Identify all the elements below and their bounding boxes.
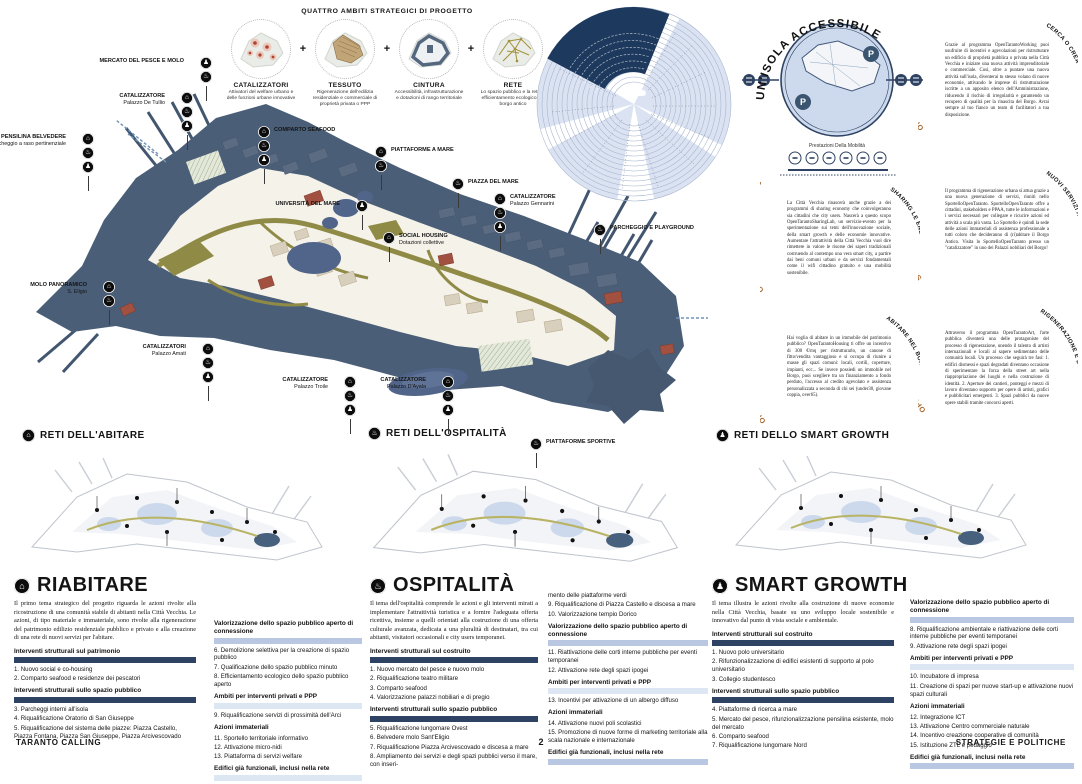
abitare-icon: ⌂	[383, 232, 395, 244]
intervention-list: 1. Nuovo polo universitario2. Rifunziona…	[712, 649, 894, 684]
intervention-item: 3. Parcheggi interni all'isola	[14, 706, 196, 714]
intervention-item: 5. Riqualificazione lungomare Ovest	[370, 725, 538, 733]
accessible-island-diagram: P P UN'ISOLA ACCESSIBILE Prestazioni Del…	[740, 4, 925, 182]
section-column-left: Interventi strutturali sul costruito1. N…	[712, 631, 894, 751]
marker-stem	[206, 86, 207, 101]
abitare-icon: ⌂	[82, 133, 94, 145]
list-header: Edifici già funzionali, inclusi nella re…	[548, 749, 708, 757]
intervention-item: 4. Valorizzazione palazzi nobiliari e di…	[370, 694, 538, 702]
list-header: Valorizzazione dello spazio pubblico ape…	[214, 620, 362, 636]
list-header-bar	[548, 688, 708, 694]
marker-label: CATALIZZATORIPalazzo Amati	[94, 344, 186, 357]
ambito-name: CINTURA	[394, 82, 464, 89]
list-header-bar	[548, 717, 708, 719]
program-body-text: La Città Vecchia rinascerà anche grazie …	[787, 201, 891, 277]
ospitalita-icon: ♨	[442, 390, 454, 402]
mobility-icons-row	[789, 152, 886, 164]
marker-stem	[208, 386, 209, 401]
ospitalita-icon: ♨	[82, 147, 94, 159]
ospitalita-icon: ♨	[202, 357, 214, 369]
marker-label: PIATTAFORME A MARE	[391, 147, 483, 154]
intervention-item: 5. Mercato del pesce, rifunzionalizzazio…	[712, 716, 894, 732]
list-header: Interventi strutturali sul patrimonio	[14, 648, 196, 656]
list-header-bar	[214, 732, 362, 734]
network-map-title: RETI DELLO SMART GROWTH	[734, 430, 889, 441]
list-header: Interventi strutturali sullo spazio pubb…	[370, 706, 538, 714]
marker-stem	[350, 419, 351, 434]
marker-label: UNIVERSITÀ DEL MARE	[248, 201, 340, 208]
marker-stem	[381, 175, 382, 190]
marker-stem	[448, 419, 449, 434]
smart-icon: ♟	[82, 161, 94, 173]
section-intro: Il tema dell'ospitalità comprende le azi…	[370, 600, 538, 643]
urban-fabric-icon	[317, 21, 373, 77]
ospitalita-icon: ♨	[370, 578, 386, 594]
intervention-list: 1. Nuovo mercato del pesce e nuovo molo2…	[370, 666, 538, 702]
smart-growth-icon: ♟	[712, 578, 728, 594]
marker-label: PARCHEGGIO E PLAYGROUND	[610, 225, 702, 232]
list-header: Ambiti per interventi privati e PPP	[910, 655, 1074, 663]
list-header: Edifici già funzionali, inclusi nella re…	[910, 754, 1074, 762]
marker-sublabel: S. Eligio	[0, 289, 87, 295]
list-header: Azioni immateriali	[910, 703, 1074, 711]
svg-text:OPENTARANTOHOUSING: OPENTARANTOHOUSING	[760, 324, 768, 425]
svg-text:P: P	[868, 49, 874, 59]
mobility-caption: Prestazioni Della Mobilità	[809, 143, 865, 149]
marker-sublabel: Dotazioni collettive	[399, 240, 491, 246]
intervention-list: 11. Riattivazione delle corti interne pu…	[548, 649, 708, 674]
ospitalita-icon: ♨	[368, 427, 381, 440]
marker-label: MOLO PANORAMICOS. Eligio	[0, 282, 87, 295]
list-header-bar	[214, 638, 362, 644]
list-header-bar	[910, 763, 1074, 769]
intervention-item: mento delle piattaforme verdi	[548, 592, 708, 600]
intervention-item: 1. Nuovo social e co-housing	[14, 666, 196, 674]
intervention-item: 2. Rifunzionalizzazione di edifici esist…	[712, 658, 894, 674]
marker-stem	[536, 453, 537, 468]
ospitalita-icon: ♨	[103, 295, 115, 307]
network-map-header-ospitalita: ♨ RETI DELL'OSPITALITÀ	[368, 427, 507, 440]
plus-sign: +	[384, 43, 390, 55]
list-header-bar	[548, 759, 708, 765]
intervention-item: 10. Valorizzazione tempio Dorico	[548, 611, 708, 619]
section-column-left: Interventi strutturali sul patrimonio1. …	[14, 648, 196, 741]
strategy-radial-diagram	[526, 2, 741, 207]
ambito-cintura: CINTURA Accessibilità, infrastrutturazio…	[394, 19, 464, 102]
intervention-item: 4. Riqualificazione Oratorio di San Gius…	[14, 715, 196, 723]
intervention-item: 1. Nuovo polo universitario	[712, 649, 894, 657]
program-block-sportello: SPORTELLOOPENTARANTO NUOVI SERVIZI A DIS…	[918, 156, 1078, 316]
abitare-icon: ⌂	[22, 429, 35, 442]
marker-stem	[458, 193, 459, 208]
marker-label: MERCATO DEL PESCE E MOLO	[92, 58, 184, 65]
intervention-item: 9. Riqualificazione di Piazza Castello e…	[548, 601, 708, 609]
section-intro: Il tema illustra le azioni rivolte alla …	[712, 600, 894, 626]
intervention-item: 13. Incentivi per attivazione di un albe…	[548, 697, 708, 705]
ambito-caption: Accessibilità, infrastrutturazione e dot…	[394, 90, 464, 102]
intervention-list: 8. Riqualificazione ambientale e riattiv…	[910, 626, 1074, 651]
marker-sublabel: Palazzo Troile	[236, 384, 328, 390]
intervention-item: 10. Incubatore di impresa	[910, 673, 1074, 681]
marker-stem	[362, 215, 363, 230]
program-curved-title: OPENTARANTOSHARINGLAB	[760, 178, 766, 294]
list-header: Azioni immateriali	[214, 724, 362, 732]
list-header-bar	[14, 657, 196, 663]
footer-section-title: STRATEGIE E POLITICHE	[956, 738, 1066, 747]
intervention-item: 14. Attivazione nuovi poli scolastici	[548, 720, 708, 728]
ospitalita-icon: ♨	[181, 106, 193, 118]
intervention-list: 3. Parcheggi interni all'isola4. Riquali…	[14, 706, 196, 741]
ospitalita-icon: ♨	[452, 178, 464, 190]
intervention-item: 12. Attivazione rete degli spazi ipogei	[548, 667, 708, 675]
marker-stem	[88, 176, 89, 191]
abitare-icon: ⌂	[258, 126, 270, 138]
intervention-list: mento delle piattaforme verdi9. Riqualif…	[548, 592, 708, 619]
marker-sublabel: Palazzo De Tullio	[73, 100, 165, 106]
abitare-icon: ⌂	[181, 92, 193, 104]
list-header: Ambiti per interventi privati e PPP	[548, 679, 708, 687]
ospitalita-icon: ♨	[344, 390, 356, 402]
intervention-item: 6. Demolizione selettiva per la creazion…	[214, 647, 362, 663]
section-title: SMART GROWTH	[735, 574, 908, 597]
ambito-name: CATALIZZATORI	[226, 82, 296, 89]
marker-stem	[109, 310, 110, 325]
intervention-list: 9. Riqualificazione servizi di prossimit…	[214, 712, 362, 720]
intervention-item: 8. Riqualificazione ambientale e riattiv…	[910, 626, 1074, 642]
program-block-art: OPENTARANTOART RIGENERAZIONE E D'ARTE At…	[918, 298, 1078, 458]
svg-text:NUOVI SERVIZI A DISPOSIZIONE: NUOVI SERVIZI A DISPOSIZIONE	[1045, 171, 1078, 265]
ospitalita-icon: ♨	[375, 160, 387, 172]
ospitalita-icon: ♨	[258, 140, 270, 152]
smart-icon: ♟	[494, 221, 506, 233]
smart-icon: ♟	[356, 200, 368, 212]
list-header: Interventi strutturali sullo spazio pubb…	[14, 687, 196, 695]
abitare-icon: ⌂	[202, 343, 214, 355]
program-side-label: SHARING LE ENERGIE	[889, 187, 920, 251]
section-intro: Il primo tema strategico del progetto ri…	[14, 600, 196, 643]
belt-outline-icon	[401, 21, 457, 77]
section-smart-growth: ♟ SMART GROWTH Il tema illustra le azion…	[712, 574, 1074, 752]
marker-label: CATALIZZATOREPalazzo D'Ayala	[334, 377, 426, 390]
ospitalita-icon: ♨	[494, 207, 506, 219]
abitare-icon: ⌂	[442, 376, 454, 388]
marker-label: CATALIZZATOREPalazzo Troile	[236, 377, 328, 390]
network-map-title: RETI DELL'ABITARE	[40, 430, 145, 441]
list-header: Valorizzazione dello spazio pubblico ape…	[910, 599, 1074, 615]
intervention-item: 2. Comparto seafood e residenze dei pesc…	[14, 675, 196, 683]
intervention-item: 9. Attivazione rete degli spazi ipogei	[910, 643, 1074, 651]
section-riabitare: ⌂ RIABITARE Il primo tema strategico del…	[14, 574, 362, 742]
network-map-abitare	[12, 452, 342, 570]
program-curved-title: OPENTARANTOWORKING	[918, 29, 926, 132]
abitare-icon: ⌂	[494, 193, 506, 205]
program-curved-title: OPENTARANTOHOUSING	[760, 324, 768, 425]
ambito-tessuto: TESSUTO Rigenerazione dell'edilizia resi…	[310, 19, 380, 108]
network-map-header-abitare: ⌂ RETI DELL'ABITARE	[22, 429, 145, 442]
svg-text:OPENTARANTOSHARINGLAB: OPENTARANTOSHARINGLAB	[760, 178, 766, 294]
list-header-bar	[548, 640, 708, 646]
ospitalita-icon: ♨	[594, 224, 606, 236]
program-body-text: Attraverso il programma OpenTarantoArt, …	[945, 331, 1049, 407]
abitare-icon: ⌂	[103, 281, 115, 293]
ambito-name: TESSUTO	[310, 82, 380, 89]
smart-icon: ♟	[202, 371, 214, 383]
marker-label: COMPARTO SEAFOOD	[274, 127, 366, 134]
list-header: Interventi strutturali sul costruito	[712, 631, 894, 639]
quattro-ambiti-panel: QUATTRO AMBITI STRATEGICI DI PROGETTO CA…	[226, 8, 548, 108]
marker-label: PENSILINA BELVEDERE+ parcheggio a raso p…	[0, 134, 66, 147]
abitare-icon: ⌂	[14, 578, 30, 594]
program-block-working: OPENTARANTOWORKING CERCA O CREA Grazie a…	[918, 10, 1078, 170]
marker-stem	[389, 247, 390, 262]
plus-sign: +	[468, 43, 474, 55]
catalysts-dots-icon	[233, 21, 289, 77]
intervention-item: 11. Creazione di spazi per nuove start-u…	[910, 683, 1074, 699]
intervention-list: 1. Nuovo social e co-housing2. Comparto …	[14, 666, 196, 683]
intervention-item: 8. Ampliamento dei servizi e degli spazi…	[370, 753, 538, 769]
list-header: Edifici già funzionali, inclusi nella re…	[214, 765, 362, 773]
marker-sublabel: Palazzo D'Ayala	[334, 384, 426, 390]
page-number: 2	[0, 737, 1082, 747]
smart-icon: ♟	[344, 404, 356, 416]
marker-label: CATALIZZATOREPalazzo De Tullio	[73, 93, 165, 106]
intervention-item: 3. Comparto seafood	[370, 685, 538, 693]
marker-sublabel: + parcheggio a raso pertinenziale	[0, 141, 66, 147]
list-header-bar	[214, 775, 362, 781]
marker-label: CATALIZZATOREPalazzo Gennarini	[510, 194, 602, 207]
program-body-text: Hai voglia di abitare in un immobile del…	[787, 336, 891, 399]
section-title: RIABITARE	[37, 574, 148, 597]
ospitalita-icon: ♨	[200, 71, 212, 83]
marker-label: PIATTAFORME SPORTIVE	[546, 439, 638, 446]
network-map-smart-growth	[716, 450, 1046, 568]
network-map-ospitalita	[358, 448, 693, 574]
intervention-item: 2. Riqualificazione teatro militare	[370, 675, 538, 683]
marker-stem	[600, 239, 601, 254]
ospitalita-icon: ♨	[530, 438, 542, 450]
list-header-bar	[910, 664, 1074, 670]
list-header-bar	[712, 640, 894, 646]
marker-label: PIAZZA DEL MARE	[468, 179, 560, 186]
intervention-item: 8. Efficientamento ecologico dello spazi…	[214, 673, 362, 689]
smart-growth-icon: ♟	[716, 429, 729, 442]
marker-label: SOCIAL HOUSINGDotazioni collettive	[399, 233, 491, 246]
intervention-item: 1. Nuovo mercato del pesce e nuovo molo	[370, 666, 538, 674]
section-column-left: Interventi strutturali sul costruito1. N…	[370, 648, 538, 769]
list-header: Azioni immateriali	[548, 709, 708, 717]
intervention-item: 12. Integrazione ICT	[910, 714, 1074, 722]
intervention-item: 9. Riqualificazione servizi di prossimit…	[214, 712, 362, 720]
svg-text:OPENTARANTOWORKING: OPENTARANTOWORKING	[918, 29, 926, 132]
list-header: Interventi strutturali sul costruito	[370, 648, 538, 656]
list-header-bar	[370, 657, 538, 663]
svg-text:SPORTELLOOPENTARANTO: SPORTELLOOPENTARANTO	[918, 170, 924, 282]
marker-sublabel: Palazzo Gennarini	[510, 201, 602, 207]
intervention-item: 13. Piattaforma di servizi welfare	[214, 753, 362, 761]
intervention-list: 13. Incentivi per attivazione di un albe…	[548, 697, 708, 705]
program-curved-title: SPORTELLOOPENTARANTO	[918, 170, 924, 282]
abitare-icon: ⌂	[375, 146, 387, 158]
list-header: Interventi strutturali sullo spazio pubb…	[712, 688, 894, 696]
svg-text:CERCA O CREA: CERCA O CREA	[1045, 23, 1078, 65]
network-map-header-smart-growth: ♟ RETI DELLO SMART GROWTH	[716, 429, 889, 442]
program-side-label: NUOVI SERVIZI A DISPOSIZIONE	[1045, 171, 1078, 265]
svg-text:OPENTARANTOART: OPENTARANTOART	[918, 334, 928, 414]
section-title: OSPITALITÀ	[393, 574, 514, 597]
ambito-caption: Rigenerazione dell'edilizia residenziale…	[310, 90, 380, 108]
intervention-list: 10. Incubatore di impresa11. Creazione d…	[910, 673, 1074, 698]
smart-icon: ♟	[181, 120, 193, 132]
intervention-item: 3. Collegio studentesco	[712, 676, 894, 684]
ambito-catalizzatori: CATALIZZATORI Attivatori del welfare urb…	[226, 19, 296, 102]
program-body-text: Grazie al programma OpenTarantoWorking p…	[945, 43, 1049, 119]
intervention-item: 11. Riattivazione delle corti interne pu…	[548, 649, 708, 665]
list-header-bar	[370, 716, 538, 722]
intervention-item: 7. Qualificazione dello spazio pubblico …	[214, 664, 362, 672]
marker-stem	[187, 135, 188, 150]
smart-icon: ♟	[258, 154, 270, 166]
program-curved-title: OPENTARANTOART	[918, 334, 928, 414]
list-header: Valorizzazione dello spazio pubblico ape…	[548, 623, 708, 639]
plus-sign: +	[300, 43, 306, 55]
ambito-caption: Attivatori del welfare urbano e delle fu…	[226, 90, 296, 102]
list-header-bar	[214, 703, 362, 709]
program-body-text: Il programma di rigenerazione urbana si …	[945, 189, 1049, 252]
program-side-label: CERCA O CREA	[1045, 23, 1078, 65]
intervention-item: 4. Piattaforme di ricerca a mare	[712, 706, 894, 714]
intervention-item: 13. Attivazione Centro commerciale natur…	[910, 723, 1074, 731]
list-header-bar	[910, 617, 1074, 623]
list-header-bar	[910, 711, 1074, 713]
svg-text:SHARING LE ENERGIE: SHARING LE ENERGIE	[889, 187, 920, 251]
intervention-list: 6. Demolizione selettiva per la creazion…	[214, 647, 362, 690]
section-column-right: Valorizzazione dello spazio pubblico ape…	[214, 616, 362, 784]
marker-stem	[264, 169, 265, 184]
smart-icon: ♟	[442, 404, 454, 416]
list-header-bar	[14, 697, 196, 703]
svg-text:P: P	[800, 97, 806, 107]
list-header: Ambiti per interventi privati e PPP	[214, 693, 362, 701]
dark-sector-label	[622, 90, 646, 96]
marker-sublabel: Palazzo Amati	[94, 351, 186, 357]
smart-icon: ♟	[200, 57, 212, 69]
marker-stem	[500, 236, 501, 251]
list-header-bar	[712, 697, 894, 703]
quattro-ambiti-title: QUATTRO AMBITI STRATEGICI DI PROGETTO	[226, 8, 548, 15]
